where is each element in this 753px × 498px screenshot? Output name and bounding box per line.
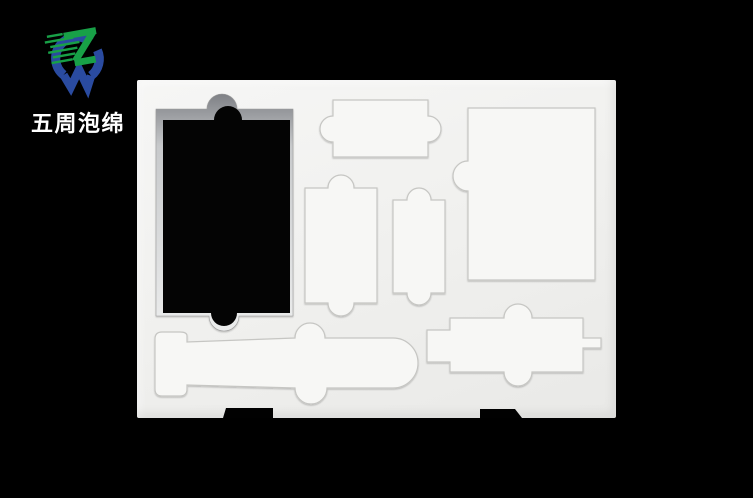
foam-tray: [137, 80, 616, 418]
photo-canvas: 五周泡绵: [0, 0, 753, 498]
brand-name: 五周泡绵: [18, 106, 138, 138]
through-hole: [163, 106, 290, 326]
slot-top-middle: [320, 100, 441, 157]
slot-submarine: [155, 323, 418, 404]
edge-notch-right: [480, 409, 522, 418]
zw-logo-icon: [40, 22, 116, 102]
slot-bottom-right: [427, 304, 601, 386]
slot-top-right: [453, 108, 595, 280]
edge-notch-left: [223, 408, 273, 418]
slot-mid-left: [305, 175, 377, 316]
foam-cutouts: [137, 80, 616, 418]
slot-mid-right: [393, 188, 445, 305]
brand-logo: 五周泡绵: [18, 22, 138, 138]
